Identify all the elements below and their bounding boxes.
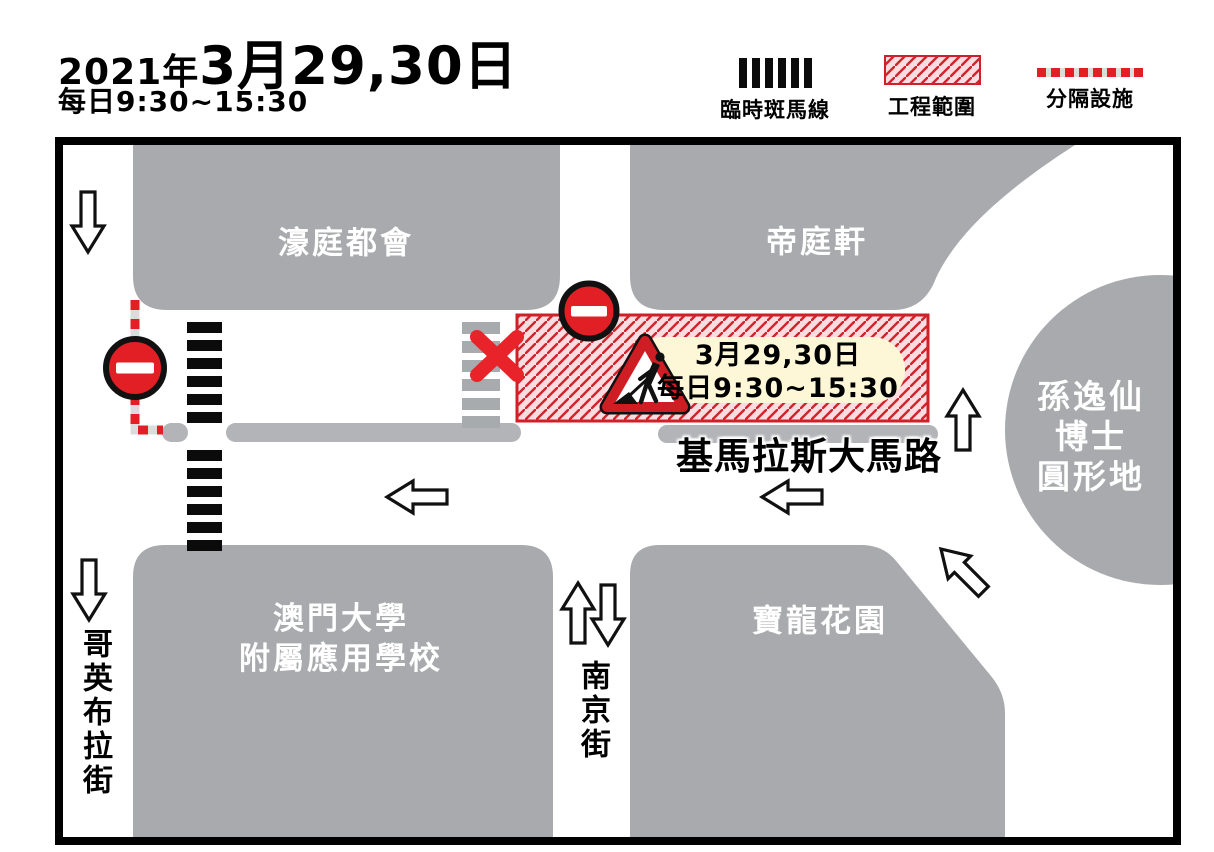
arrow-left-icon (387, 481, 447, 513)
title-time: 每日9:30~15:30 (58, 80, 308, 120)
works-sign-text: 3月29,30日 每日9:30~15:30 (657, 339, 899, 405)
building-pou-long-garden (630, 545, 1005, 837)
school-label-line1: 澳門大學 (239, 599, 443, 639)
map-area: 濠庭都會 帝庭軒 孫逸仙 博士 圓形地 澳門大學 附屬應用學校 寶龍花園 哥英布… (63, 145, 1173, 837)
building-label-tai-ting: 帝庭軒 (766, 217, 868, 262)
temporary-zebra-crossing (187, 322, 222, 551)
legend-item-works: 工程範圍 (882, 55, 982, 121)
arrow-down-icon (72, 192, 104, 252)
building-label-hou-ting: 濠庭都會 (278, 218, 414, 263)
roundabout-label-line1: 孫逸仙 (1037, 377, 1145, 417)
school-label: 澳門大學 附屬應用學校 (239, 599, 443, 679)
works-sign-line1: 3月29,30日 (657, 339, 899, 372)
legend-zebra-label: 臨時斑馬線 (720, 94, 830, 124)
building-macau-university-school (133, 545, 553, 837)
road-median-left-cap (162, 423, 188, 442)
building-label-pou-long: 寶龍花園 (752, 596, 888, 641)
no-entry-icon-left (106, 339, 164, 397)
arrow-up-icon (947, 390, 979, 450)
roundabout-label-line3: 圓形地 (1037, 457, 1145, 497)
no-entry-icon-works (562, 284, 617, 339)
roundabout-label-line2: 博士 (1037, 417, 1145, 457)
street-label-guimaraes: 基馬拉斯大馬路 (676, 426, 942, 480)
legend-works-label: 工程範圍 (888, 91, 976, 121)
roundabout-label: 孫逸仙 博士 圓形地 (1037, 377, 1145, 497)
street-label-coimbra: 哥英布拉街 (72, 628, 116, 798)
works-area-icon (884, 55, 981, 85)
map-graphics (63, 145, 1173, 837)
roadworks-notice-poster: 2021年3月29,30日 每日9:30~15:30 臨時斑馬線 工程範圍 分隔… (0, 0, 1214, 852)
arrow-up-icon (562, 583, 594, 643)
works-sign-line2: 每日9:30~15:30 (657, 372, 899, 405)
legend-item-zebra: 臨時斑馬線 (725, 55, 825, 124)
arrow-left-icon (762, 481, 822, 513)
arrow-down-icon (592, 585, 624, 645)
school-label-line2: 附屬應用學校 (239, 639, 443, 679)
arrow-down-icon (73, 560, 105, 620)
street-label-nanjing: 南京街 (570, 660, 614, 762)
temporary-zebra-crossing-icon (739, 58, 812, 88)
arrow-up-left-icon (930, 538, 995, 603)
legend-item-divider: 分隔設施 (1037, 55, 1143, 113)
divider-facility-icon (1037, 68, 1143, 77)
legend-divider-label: 分隔設施 (1046, 83, 1134, 113)
map-frame: 濠庭都會 帝庭軒 孫逸仙 博士 圓形地 澳門大學 附屬應用學校 寶龍花園 哥英布… (55, 137, 1181, 845)
